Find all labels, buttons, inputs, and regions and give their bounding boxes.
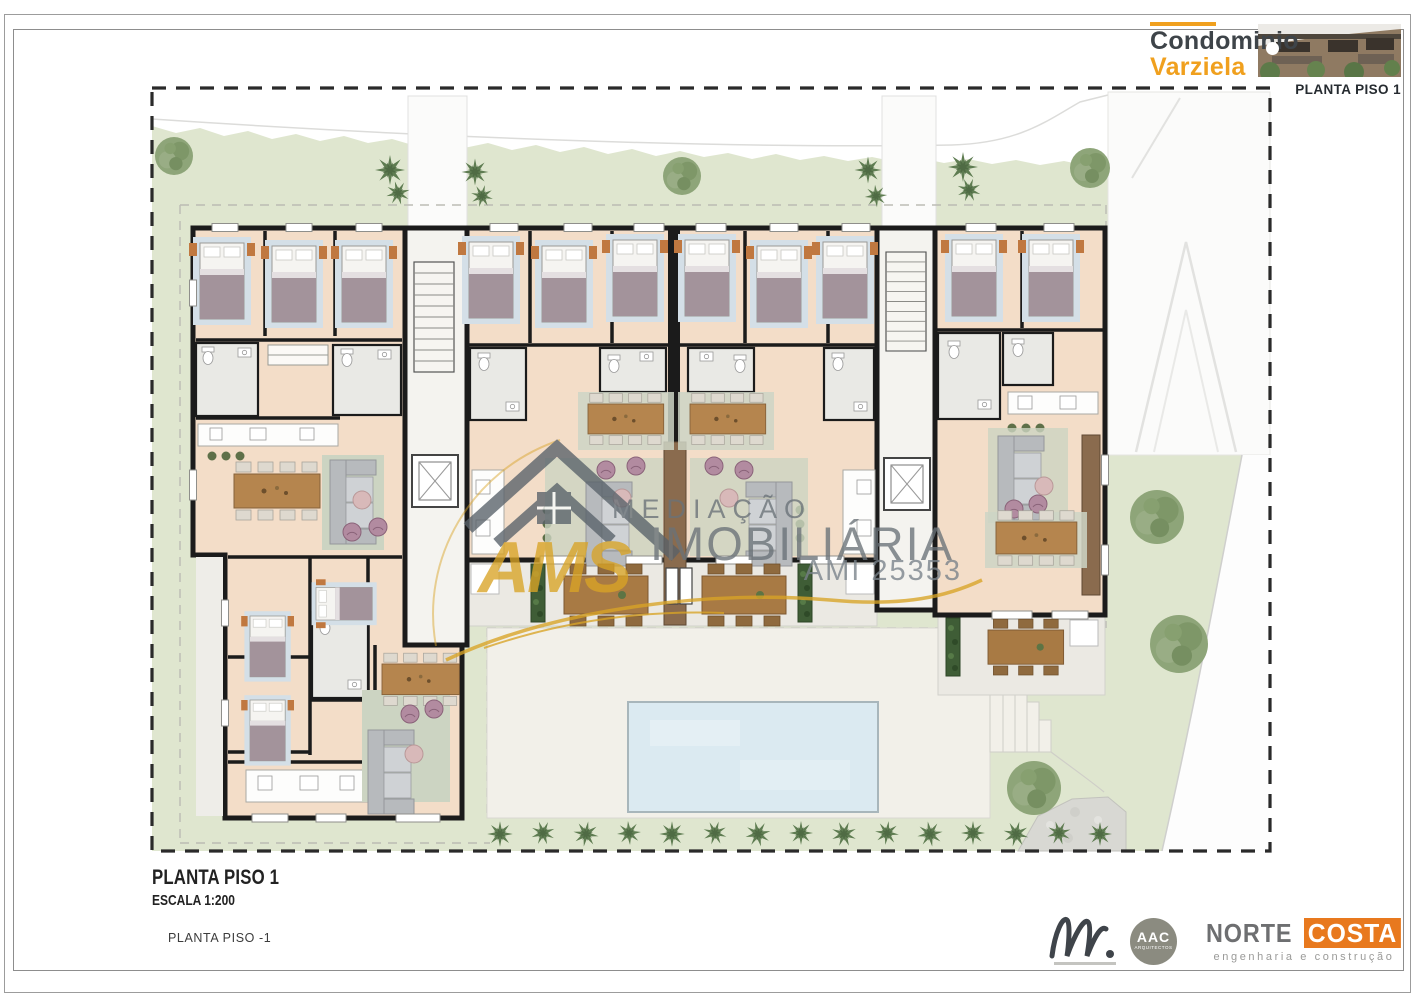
watermark-ami-license: AMI 25353	[804, 555, 962, 587]
elevator-icon	[884, 458, 930, 510]
m-architect-logo	[1048, 912, 1118, 968]
bed-icon	[331, 240, 397, 328]
aac-logo-subtext: ARQUITECTOS	[1130, 946, 1177, 951]
bed-icon	[812, 236, 878, 324]
brand-name-line2: Varziela	[1150, 55, 1299, 81]
swimming-pool	[628, 702, 878, 812]
bed-icon	[312, 579, 377, 628]
plan-sheet-page: AMS MEDIAÇÃO IMOBILIÁRIA AMI 25353	[0, 0, 1415, 1000]
plan-subtitle: PLANTA PISO -1	[168, 931, 311, 945]
plan-title: PLANTA PISO 1	[152, 866, 279, 890]
brand-accent-bar	[1150, 22, 1216, 26]
floor-plan-drawing: AMS MEDIAÇÃO IMOBILIÁRIA AMI 25353	[0, 0, 1415, 1000]
outdoor-table-icon	[988, 619, 1064, 675]
entry-walkway-left	[408, 96, 467, 230]
bed-icon	[458, 236, 524, 324]
sofa-icon	[368, 730, 414, 814]
watermark-ams: AMS	[476, 528, 632, 608]
driveway-area	[1108, 92, 1270, 455]
bed-icon	[1018, 234, 1084, 322]
bed-icon	[241, 611, 294, 681]
title-block: PLANTA PISO 1 ESCALA 1:200 PLANTA PISO -…	[152, 866, 311, 945]
sheet-label: PLANTA PISO 1	[1190, 82, 1401, 97]
brand-dot	[1266, 42, 1279, 55]
entry-walkway-right	[882, 96, 936, 230]
outdoor-table-icon	[702, 564, 786, 626]
bed-icon	[941, 234, 1007, 322]
planter-icon	[946, 618, 960, 676]
bed-icon	[261, 240, 327, 328]
bed-icon	[674, 234, 740, 322]
bed-icon	[602, 234, 668, 322]
nortecosta-tagline: engenharia e construção	[1206, 951, 1402, 963]
plan-scale: ESCALA 1:200	[152, 892, 279, 909]
nortecosta-name-left: NORTE	[1206, 918, 1292, 948]
footer-logos: AAC ARQUITECTOS NORTE COSTA engenharia e…	[1040, 912, 1402, 970]
elevator-icon	[412, 455, 458, 507]
bed-icon	[189, 237, 255, 325]
m-logo-tagline	[1054, 962, 1116, 965]
staircase-icon	[414, 262, 454, 372]
aac-architects-logo: AAC ARQUITECTOS	[1130, 918, 1177, 965]
bed-icon	[531, 240, 597, 328]
aac-logo-text: AAC	[1130, 930, 1177, 944]
bed-icon	[241, 695, 294, 765]
nortecosta-logo: NORTE COSTA engenharia e construção	[1206, 918, 1402, 963]
staircase-icon	[886, 252, 926, 351]
nortecosta-name-right: COSTA	[1304, 918, 1401, 948]
bed-icon	[746, 240, 812, 328]
